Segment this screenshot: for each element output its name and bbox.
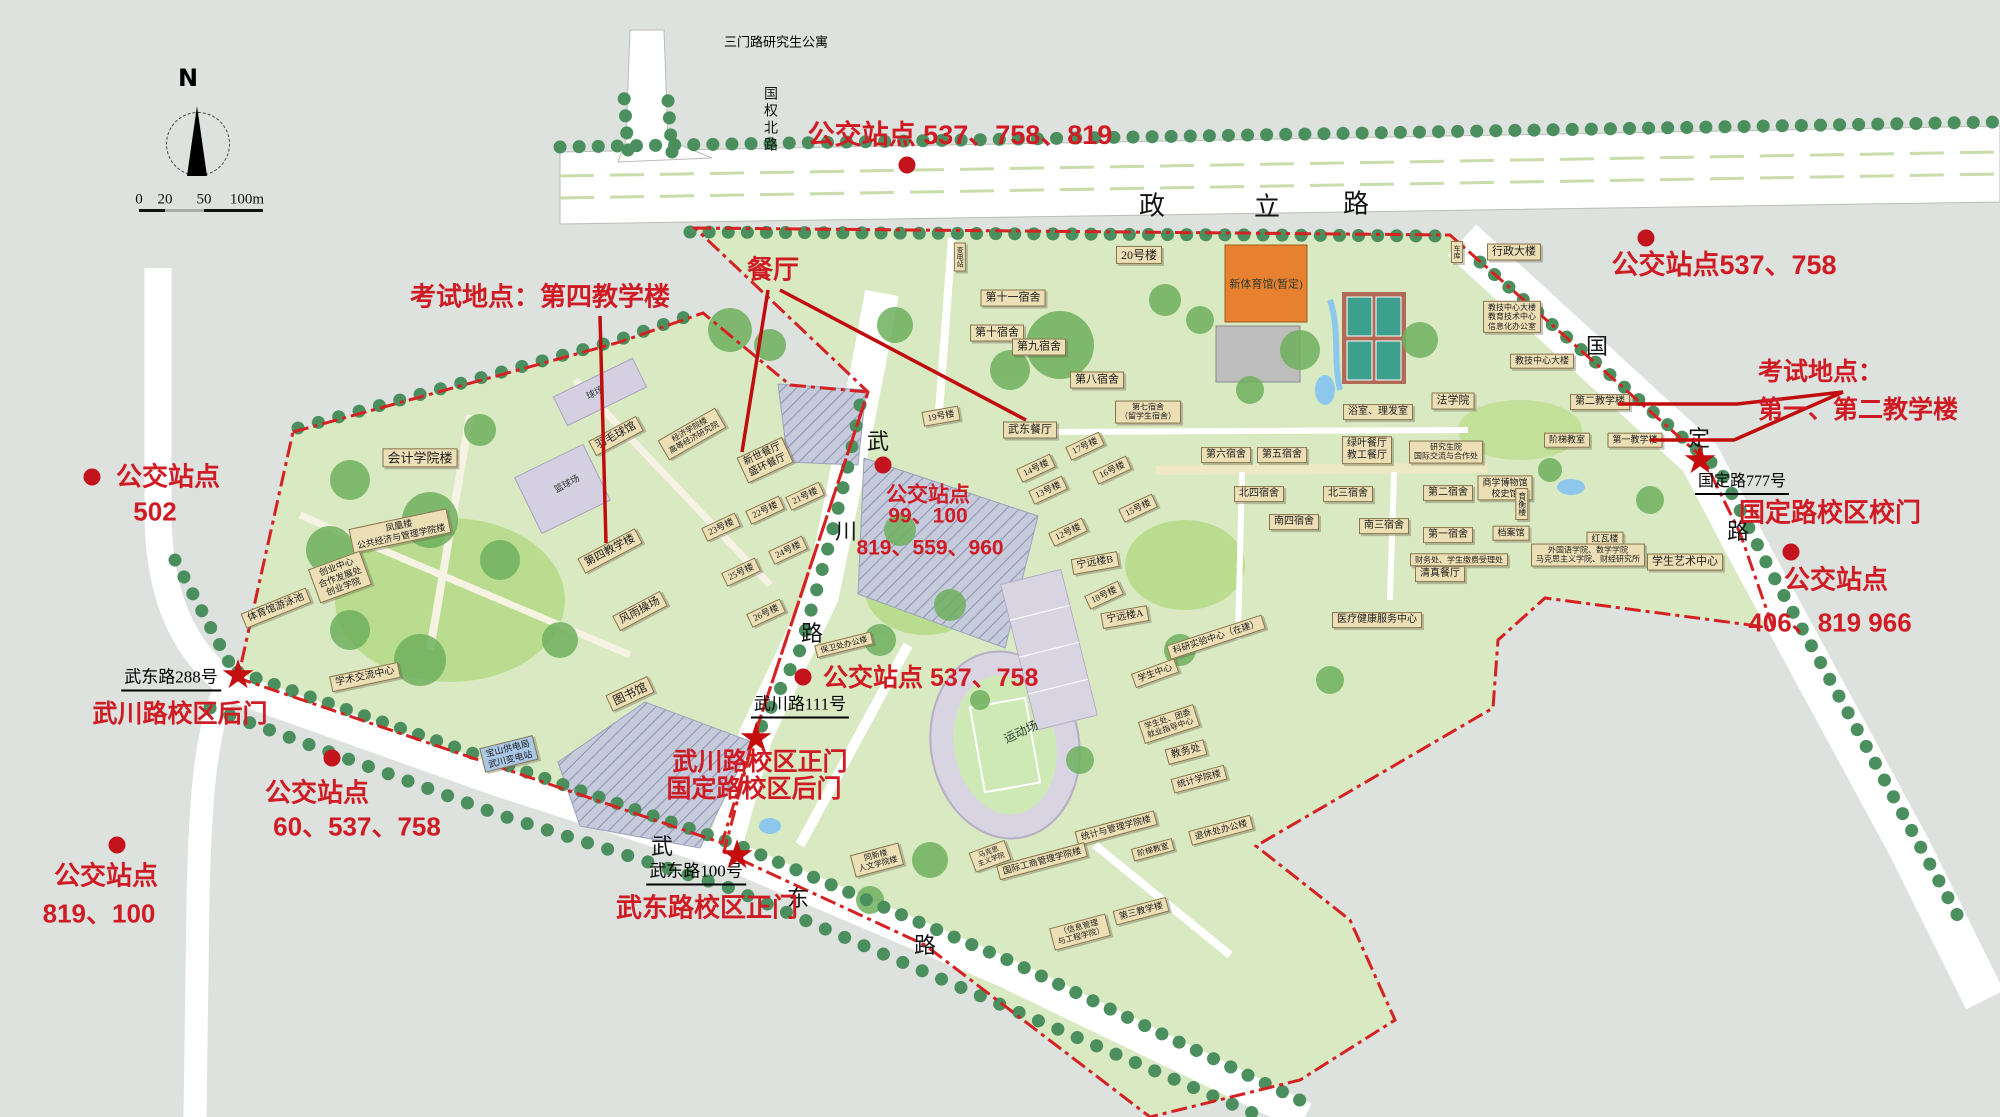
bus-stop-dot bbox=[899, 157, 916, 174]
bus-stop-label: 公交站点 bbox=[1784, 564, 1888, 595]
canteen-label: 餐厅 bbox=[747, 254, 799, 285]
campus-map: 会计学院楼凤凰楼 公共经济与管理学院楼创业中心 合作发展处 创业学院体育馆游泳池… bbox=[0, 0, 2000, 1117]
building-label: 清真餐厅 bbox=[1415, 566, 1465, 582]
building-label: 会计学院楼 bbox=[382, 448, 457, 467]
building-label: 研究生院 国际交流与合作处 bbox=[1409, 441, 1483, 464]
building-label: 第一教学楼 bbox=[1607, 433, 1662, 448]
road-name: 国 bbox=[1586, 329, 1608, 361]
building-label: 教技中心大楼 教育技术中心 信息化办公室 bbox=[1483, 301, 1541, 333]
scale-tick: 50 bbox=[197, 192, 212, 209]
bus-stop-dot bbox=[109, 837, 126, 854]
building-label: 财务处、学生缴费受理处 bbox=[1410, 553, 1508, 566]
building-label: 外国语学院、数学学院 马克思主义学院、财经研究所 bbox=[1531, 544, 1645, 567]
building-label: 法学院 bbox=[1432, 393, 1475, 410]
bus-stop-dot bbox=[1783, 544, 1800, 561]
building-label: 新体育馆(暂定) bbox=[1225, 278, 1306, 293]
building-label: 第九宿舍 bbox=[1012, 339, 1066, 356]
building-label: 教技中心大楼 bbox=[1510, 354, 1574, 369]
scale-tick: 20 bbox=[158, 192, 173, 209]
road-name: 川 bbox=[835, 514, 857, 546]
building-label: 南三宿舍 bbox=[1359, 518, 1409, 534]
gate-label: 国定路校区后门 bbox=[666, 774, 841, 804]
bus-stop-dot bbox=[84, 469, 101, 486]
compass-needle-icon bbox=[187, 106, 207, 176]
building-label: 北三宿舍 bbox=[1323, 486, 1373, 502]
bus-stop-label: 公交站点537、758 bbox=[1611, 249, 1836, 281]
building-label: 20号楼 bbox=[1116, 246, 1162, 264]
scale-tick: 0 bbox=[135, 192, 143, 209]
bus-stop-label: 公交站点 537、758 bbox=[823, 663, 1038, 693]
building-label: 武东餐厅 bbox=[1003, 422, 1057, 439]
exam-site-label: 考试地点：第四教学楼 bbox=[410, 281, 670, 312]
bus-stop-dot bbox=[1638, 230, 1655, 247]
gate-star-icon: ★ bbox=[1682, 440, 1718, 480]
building-label: 北四宿舍 bbox=[1234, 486, 1284, 502]
bus-stop-label: 公交站点 bbox=[54, 860, 158, 891]
building-label: 第二宿舍 bbox=[1423, 485, 1473, 501]
gate-label: 武川路校区后门 bbox=[92, 699, 267, 729]
exam-site-label: 考试地点： bbox=[1758, 357, 1883, 387]
gate-star-icon: ★ bbox=[719, 835, 755, 875]
building-label: 绿叶餐厅 教工餐厅 bbox=[1342, 436, 1392, 464]
bus-stop-label: 502 bbox=[133, 496, 176, 527]
bus-stop-label: 60、537、758 bbox=[273, 811, 441, 842]
bus-stop-dot bbox=[875, 457, 892, 474]
bus-stop-label: 819、559、960 bbox=[856, 535, 1003, 560]
bus-stop-label: 公交站点 537、758、819 bbox=[808, 119, 1113, 151]
building-label: 阶梯教室 bbox=[1544, 433, 1590, 448]
building-label: 医疗健康服务中心 bbox=[1332, 612, 1422, 628]
building-label: 第六宿舍 bbox=[1201, 447, 1251, 463]
scale-tick: 100m bbox=[230, 192, 264, 209]
gate-address-wudong-288: 武东路288号 bbox=[121, 663, 221, 692]
bus-stop-label: 99、100 bbox=[888, 503, 967, 528]
bus-stop-label: 公交站点 bbox=[116, 461, 220, 492]
building-label: 第五宿舍 bbox=[1257, 447, 1307, 463]
bus-stop-label: 406、819 966 bbox=[1748, 607, 1911, 638]
road-name: 路 bbox=[914, 928, 936, 960]
building-label: 第十一宿舍 bbox=[981, 290, 1046, 307]
bus-stop-label: 819、100 bbox=[43, 898, 156, 929]
exam-site-label: 第一、第二教学楼 bbox=[1758, 395, 1958, 425]
building-label: 浴室、理发室 bbox=[1343, 404, 1413, 420]
gate-star-icon: ★ bbox=[220, 655, 256, 695]
building-label: 行政大楼 bbox=[1487, 244, 1541, 261]
building-label: 档案馆 bbox=[1492, 526, 1529, 541]
road-name: 武 bbox=[867, 424, 889, 456]
road-name: 路 bbox=[1343, 184, 1369, 221]
building-label: 第二教学楼 bbox=[1570, 394, 1630, 410]
building-label: 育衡楼 bbox=[1515, 488, 1528, 520]
gate-label: 武川路校区正门 bbox=[672, 747, 847, 777]
road-name: 立 bbox=[1254, 187, 1280, 224]
sanmen-road-note: 三门路研究生公寓 bbox=[724, 32, 828, 51]
road-name: 政 bbox=[1139, 186, 1165, 223]
building-label: 第七宿舍 （留学生宿舍） bbox=[1115, 401, 1181, 424]
building-label: 学生艺术中心 bbox=[1647, 554, 1723, 571]
road-name: 国权北路 bbox=[759, 86, 779, 154]
building-label: 第一宿舍 bbox=[1423, 527, 1473, 543]
bus-stop-dot bbox=[324, 750, 341, 767]
compass-north-label: N bbox=[178, 64, 198, 92]
bus-stop-dot bbox=[795, 669, 812, 686]
bus-stop-label: 公交站点 bbox=[265, 777, 369, 808]
building-label: 车库 bbox=[1451, 241, 1463, 263]
building-label: 第八宿舍 bbox=[1070, 372, 1124, 389]
road-name: 路 bbox=[801, 616, 823, 648]
building-label: 变电站 bbox=[954, 243, 966, 272]
building-label: 南四宿舍 bbox=[1269, 514, 1319, 530]
gate-label: 国定路校区校门 bbox=[1739, 497, 1921, 528]
gate-label: 武东路校区正门 bbox=[616, 892, 798, 923]
